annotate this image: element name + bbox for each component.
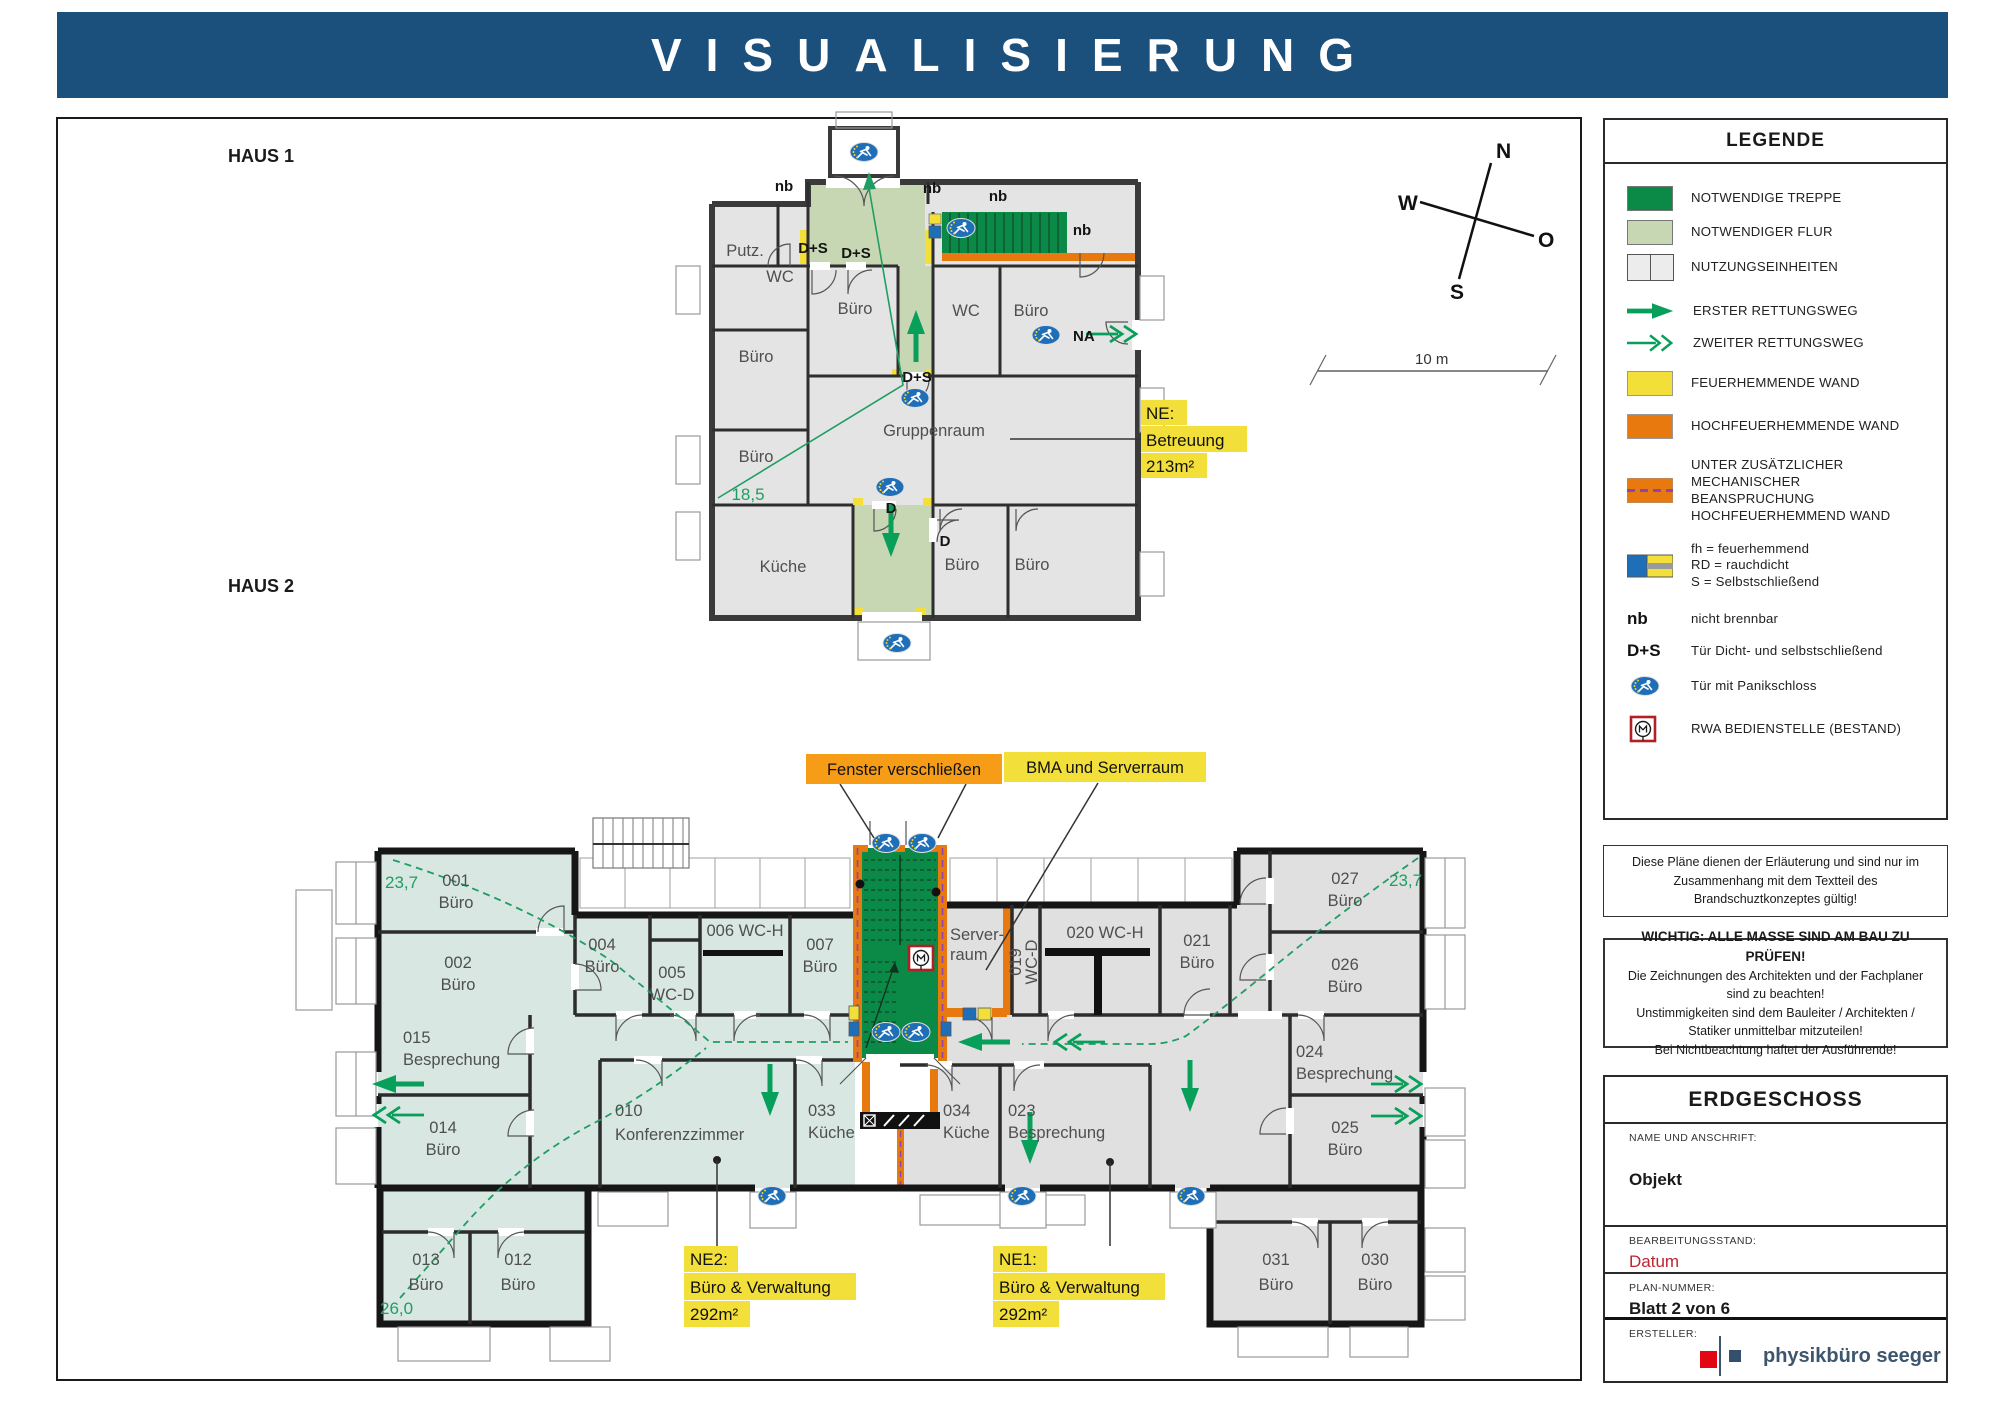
room-002: 002 <box>444 954 472 972</box>
title-bar: VISUALISIERUNG <box>57 12 1948 98</box>
name-anschrift-label: NAME UND ANSCHRIFT: <box>1629 1132 1946 1144</box>
nb-label: nb <box>923 180 941 197</box>
legend-swatch-treppe-icon <box>1627 186 1673 211</box>
ne-line: NE: <box>1146 404 1174 423</box>
note-wichtig-title: WICHTIG: ALLE MASSE SIND AM BAU ZU PRÜFE… <box>1615 927 1936 967</box>
note-wichtig-line: Die Zeichnungen des Architekten und der … <box>1615 967 1936 1004</box>
logo-red-square-icon <box>1700 1351 1717 1368</box>
note-plan-validity-text: Diese Pläne dienen der Erläuterung und s… <box>1618 853 1933 909</box>
legend-swatch-zweiter-rettungsweg-icon <box>1627 333 1677 353</box>
room-label-buero-mid: Büro <box>838 300 873 318</box>
legend-item-fh-rd-s: fh = feuerhemmend RD = rauchdicht S = Se… <box>1691 541 1819 592</box>
compass-s: S <box>1450 281 1464 304</box>
room-031-name: Büro <box>1259 1276 1294 1294</box>
company-name: physikbüro seeger <box>1763 1345 1941 1368</box>
room-021: 021 <box>1183 932 1211 950</box>
nb-label: nb <box>989 188 1007 205</box>
ne-line: NE2: <box>690 1250 728 1269</box>
ne-line: 292m² <box>690 1305 739 1324</box>
compass-rose: N W S O <box>1398 140 1554 304</box>
room-label-buero-l2: Büro <box>739 448 774 466</box>
ne-line: NE1: <box>999 1250 1037 1269</box>
scale-bar: 10 m <box>1310 351 1556 385</box>
room-025-name: Büro <box>1328 1141 1363 1159</box>
callout-bma-label: BMA und Serverraum <box>1026 759 1184 777</box>
room-002-name: Büro <box>441 976 476 994</box>
room-025: 025 <box>1331 1119 1359 1137</box>
legend-s-line: S = Selbstschließend <box>1691 574 1819 591</box>
legend-swatch-feuerhemmend-icon <box>1627 371 1673 396</box>
haus1-orange-wall <box>942 253 1138 261</box>
room-015: 015 <box>403 1029 431 1047</box>
room-034: 034 <box>943 1102 971 1120</box>
room-label-putz: Putz. <box>726 242 764 260</box>
room-033: 033 <box>808 1102 836 1120</box>
haus1-plan: Putz. WC Büro Büro Büro WC Büro Gruppenr… <box>676 112 1247 660</box>
legend-swatch-mechanische-beanspruchung-icon <box>1627 478 1675 503</box>
legend-swatch-hochfeuerhemmend-icon <box>1627 414 1673 439</box>
room-004-name: Büro <box>585 958 620 976</box>
haus2-label: HAUS 2 <box>228 576 294 596</box>
room-label-buero-l1: Büro <box>739 348 774 366</box>
room-server-2: raum <box>950 946 988 964</box>
company-logo: physikbüro seeger <box>1700 1336 1941 1376</box>
room-034-name: Küche <box>943 1124 990 1142</box>
room-024-name: Besprechung <box>1296 1065 1393 1083</box>
room-021-name: Büro <box>1180 954 1215 972</box>
legend-item-nutzungseinheiten: NUTZUNGSEINHEITEN <box>1691 259 1838 276</box>
legend-item-dicht-selbstschliessend: Tür Dicht- und selbstschließend <box>1691 643 1883 660</box>
scale-label: 10 m <box>1415 351 1448 368</box>
room-026-name: Büro <box>1328 978 1363 996</box>
room-013-name: Büro <box>409 1276 444 1294</box>
legend-item-erster-rettungsweg: ERSTER RETTUNGSWEG <box>1693 303 1858 320</box>
note-wichtig-line: Unstimmigkeiten sind dem Bauleiter / Arc… <box>1615 1004 1936 1041</box>
legend-item-zweiter-rettungsweg: ZWEITER RETTUNGSWEG <box>1693 335 1864 352</box>
nb-label: nb <box>775 178 793 195</box>
room-001: 001 <box>442 872 470 890</box>
room-019-name: WC-D <box>1023 939 1041 984</box>
rwa-icon <box>909 946 933 970</box>
room-label-buero-b1: Büro <box>945 556 980 574</box>
note-wichtig: WICHTIG: ALLE MASSE SIND AM BAU ZU PRÜFE… <box>1603 938 1948 1048</box>
room-server: Server- <box>950 926 1004 944</box>
room-020: 020 WC-H <box>1066 924 1143 942</box>
dim-23-7-left: 23,7 <box>385 873 418 892</box>
room-007: 007 <box>806 936 834 954</box>
callout-fenster-label: Fenster verschließen <box>827 761 981 779</box>
room-027-name: Büro <box>1328 892 1363 910</box>
legend-swatch-erster-rettungsweg-icon <box>1627 301 1677 321</box>
room-013: 013 <box>412 1251 440 1269</box>
blatt-value: Blatt 2 von 6 <box>1629 1299 1946 1319</box>
legend-item-panikschloss: Tür mit Panikschloss <box>1691 678 1817 695</box>
room-023: 023 <box>1008 1102 1036 1120</box>
legend-swatch-fh-rd-s-icon <box>1627 553 1675 579</box>
ne-line: Büro & Verwaltung <box>690 1278 831 1297</box>
room-010-name: Konferenzzimmer <box>615 1126 745 1144</box>
legend-title: LEGENDE <box>1605 120 1946 164</box>
plan-nummer-label: PLAN-NUMMER: <box>1629 1282 1946 1294</box>
ds-label: D+S <box>902 369 932 386</box>
legend-swatch-flur-icon <box>1627 220 1673 245</box>
ds-label: D+S <box>841 245 871 262</box>
compass-o: O <box>1538 229 1554 252</box>
room-label-buero-b2: Büro <box>1015 556 1050 574</box>
na-label: NA <box>1073 328 1095 345</box>
dim-26-0: 26,0 <box>380 1299 413 1318</box>
room-026: 026 <box>1331 956 1359 974</box>
ds-label: D+S <box>798 240 828 257</box>
compass-w: W <box>1398 192 1418 215</box>
legend-item-hochfeuerhemmende-wand: HOCHFEUERHEMMENDE WAND <box>1691 418 1899 435</box>
logo-divider-icon <box>1719 1336 1721 1376</box>
legend-fh-line: fh = feuerhemmend <box>1691 541 1819 558</box>
nb-label: nb <box>1073 222 1091 239</box>
room-005-name: WC-D <box>650 986 695 1004</box>
legend-key-ds: D+S <box>1627 641 1661 661</box>
room-015-name: Besprechung <box>403 1051 500 1069</box>
external-stair <box>593 818 689 868</box>
legend-item-treppe: NOTWENDIGE TREPPE <box>1691 190 1841 207</box>
room-001-name: Büro <box>439 894 474 912</box>
ne-line: Büro & Verwaltung <box>999 1278 1140 1297</box>
room-014: 014 <box>429 1119 457 1137</box>
dim-23-7-right: 23,7 <box>1389 871 1422 890</box>
compass-n: N <box>1496 140 1511 163</box>
room-014-name: Büro <box>426 1141 461 1159</box>
legend-swatch-nutzungseinheiten-icon <box>1627 254 1675 281</box>
room-010: 010 <box>615 1102 643 1120</box>
room-030: 030 <box>1361 1251 1389 1269</box>
ne-line: 213m² <box>1146 457 1195 476</box>
sheet-title: ERDGESCHOSS <box>1605 1077 1946 1124</box>
room-031: 031 <box>1262 1251 1290 1269</box>
room-033-name: Küche <box>808 1124 855 1142</box>
ne-line: 292m² <box>999 1305 1048 1324</box>
room-027: 027 <box>1331 870 1359 888</box>
legend-swatch-panikschloss-icon <box>1627 673 1675 699</box>
legend-panel: LEGENDE NOTWENDIGE TREPPE NOTWENDIGER FL… <box>1603 118 1948 820</box>
room-label-buero-right: Büro <box>1014 302 1049 320</box>
room-024: 024 <box>1296 1043 1324 1061</box>
room-label-gruppenraum: Gruppenraum <box>883 422 985 440</box>
datum-value: Datum <box>1629 1252 1946 1272</box>
legend-item-nicht-brennbar: nicht brennbar <box>1691 611 1778 628</box>
callout-fenster: Fenster verschließen <box>806 754 1002 838</box>
haus1-label: HAUS 1 <box>228 146 294 166</box>
room-label-wc-right: WC <box>952 302 980 320</box>
room-label-wc-left: WC <box>766 268 794 286</box>
room-007-name: Büro <box>803 958 838 976</box>
room-005: 005 <box>658 964 686 982</box>
legend-item-rwa: RWA BEDIENSTELLE (BESTAND) <box>1691 721 1901 738</box>
bearbeitungsstand-label: BEARBEITUNGSSTAND: <box>1629 1235 1946 1247</box>
objekt-value: Objekt <box>1629 1170 1946 1190</box>
room-004: 004 <box>588 936 616 954</box>
room-012-name: Büro <box>501 1276 536 1294</box>
haus2-plan: Fenster verschließen BMA und Serverraum … <box>296 752 1465 1361</box>
legend-rd-line: RD = rauchdicht <box>1691 557 1819 574</box>
room-023-name: Besprechung <box>1008 1124 1105 1142</box>
d-label: D <box>940 533 951 550</box>
logo-blue-square-icon <box>1729 1350 1741 1362</box>
note-plan-validity: Diese Pläne dienen der Erläuterung und s… <box>1603 845 1948 917</box>
room-012: 012 <box>504 1251 532 1269</box>
page-title: VISUALISIERUNG <box>627 28 1378 82</box>
dim-18-5: 18,5 <box>731 485 764 504</box>
d-label: D <box>886 500 897 517</box>
ne-line: Betreuung <box>1146 431 1224 450</box>
room-label-kueche: Küche <box>760 558 807 576</box>
legend-swatch-rwa-icon <box>1627 713 1675 745</box>
legend-key-nb: nb <box>1627 609 1648 629</box>
note-wichtig-line: Bei Nichtbeachtung haftet der Ausführend… <box>1655 1041 1897 1060</box>
legend-item-flur: NOTWENDIGER FLUR <box>1691 224 1833 241</box>
title-block: ERDGESCHOSS NAME UND ANSCHRIFT: Objekt B… <box>1603 1075 1948 1383</box>
room-030-name: Büro <box>1358 1276 1393 1294</box>
legend-item-mechanische-beanspruchung: UNTER ZUSÄTZLICHER MECHANISCHER BEANSPRU… <box>1691 457 1906 525</box>
legend-item-feuerhemmende-wand: FEUERHEMMENDE WAND <box>1691 375 1860 392</box>
room-006: 006 WC-H <box>706 922 783 940</box>
